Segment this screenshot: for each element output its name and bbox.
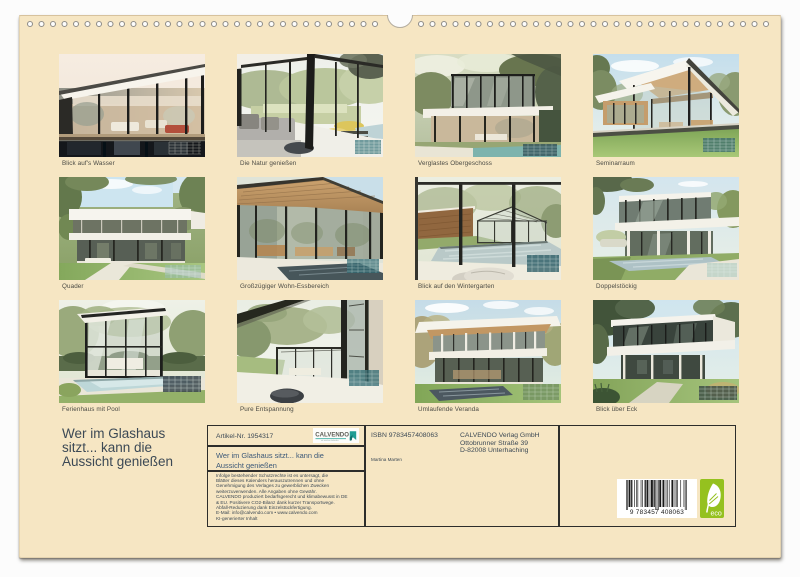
svg-text:wir machen kalender: wir machen kalender [321,439,339,442]
svg-text:CALVENDO: CALVENDO [315,431,349,438]
svg-text:eco: eco [711,511,722,518]
